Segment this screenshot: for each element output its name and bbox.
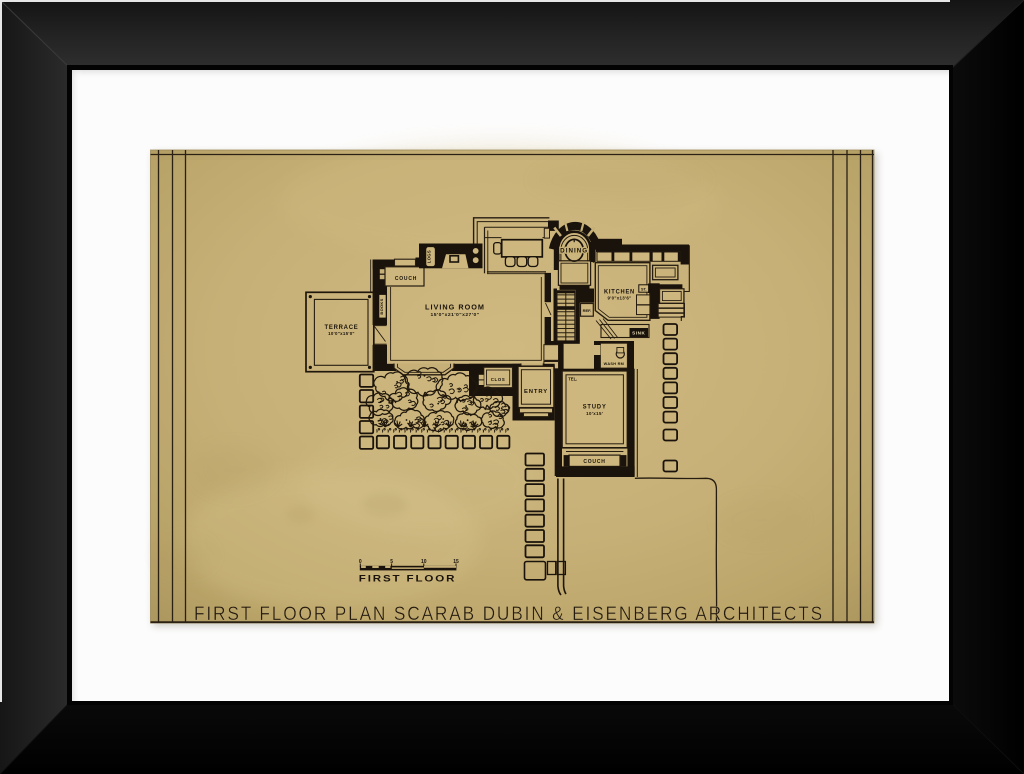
svg-text:LOGS: LOGS — [427, 250, 432, 263]
svg-text:WASH RM: WASH RM — [604, 362, 624, 366]
svg-text:STUDY: STUDY — [583, 404, 607, 411]
svg-text:COUCH: COUCH — [395, 276, 417, 282]
svg-text:FIRST FLOOR: FIRST FLOOR — [359, 573, 457, 583]
svg-text:TEL.: TEL. — [568, 377, 577, 382]
svg-text:9'0"x13'6": 9'0"x13'6" — [608, 296, 632, 301]
svg-text:LIVING ROOM: LIVING ROOM — [425, 303, 485, 312]
svg-text:REF.: REF. — [583, 308, 592, 313]
svg-text:15'0"x21'0"x27'0": 15'0"x21'0"x27'0" — [431, 312, 480, 317]
svg-text:SINK: SINK — [632, 331, 645, 336]
svg-text:CLOS: CLOS — [491, 377, 506, 382]
svg-text:FIRST FLOOR PLAN SCARAB DUBIN: FIRST FLOOR PLAN SCARAB DUBIN & EISENBER… — [194, 604, 824, 625]
svg-text:ST.: ST. — [641, 287, 647, 291]
svg-text:BOOKS: BOOKS — [379, 298, 384, 314]
svg-text:COUCH: COUCH — [583, 459, 605, 465]
svg-text:ENTRY: ENTRY — [524, 389, 548, 395]
svg-text:10'0"x15'0": 10'0"x15'0" — [328, 331, 355, 336]
svg-text:10'x15': 10'x15' — [586, 411, 603, 416]
svg-text:DINING: DINING — [560, 248, 588, 254]
